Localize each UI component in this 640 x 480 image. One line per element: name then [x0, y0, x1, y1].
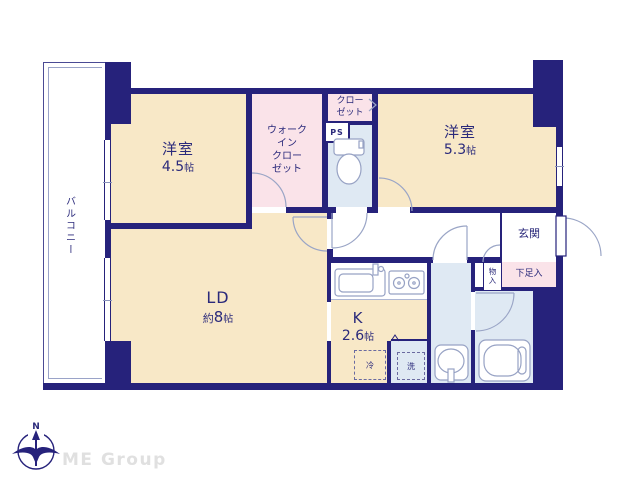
- living-dining-label: LD 約8帖: [168, 288, 268, 328]
- sink-faucet: [373, 264, 378, 275]
- entrance-door-arc: [563, 218, 601, 256]
- sink-faucet-knob: [379, 267, 384, 272]
- living-door-arc: [293, 217, 327, 251]
- living-dining-size: 約8帖: [168, 308, 268, 328]
- closet-label: クロー ゼット: [328, 96, 372, 119]
- bedroom45-size: 4.5帖: [128, 159, 228, 177]
- walk-in-closet-label: ウォーク イン クロー ゼット: [252, 124, 322, 176]
- toilet-button: [359, 141, 363, 148]
- bedroom53-size: 5.3帖: [410, 142, 510, 160]
- kitchen-size: 2.6帖: [308, 328, 408, 346]
- bedroom45-name: 洋室: [128, 140, 228, 159]
- toilet-bowl: [337, 154, 361, 184]
- washbasin-stem: [448, 369, 454, 382]
- kitchen-name: K: [308, 309, 408, 328]
- storage-door-arc: [483, 245, 500, 262]
- shoe-cabinet-label: 下足入: [502, 269, 556, 280]
- compass-north-label: N: [29, 422, 43, 433]
- bedroom53-door-arc: [379, 178, 412, 211]
- entrance-door-leaf: [556, 216, 566, 256]
- wic-door-arc: [252, 173, 286, 207]
- balcony-label: バルコニー: [62, 196, 75, 256]
- kitchen-label: K 2.6帖: [308, 309, 408, 345]
- brand-watermark: ME Group: [62, 450, 167, 470]
- floorplan: PS 物 入 冷 洗: [0, 0, 640, 480]
- bedroom53-name: 洋室: [410, 123, 510, 142]
- bathtub-outer: [479, 340, 530, 381]
- washroom-door-arc: [433, 226, 467, 260]
- entrance-label: 玄関: [502, 227, 556, 241]
- bedroom45-label: 洋室 4.5帖: [128, 140, 228, 176]
- bathroom-door-arc: [476, 293, 514, 331]
- bedroom53-label: 洋室 5.3帖: [410, 123, 510, 159]
- living-dining-name: LD: [168, 288, 268, 308]
- toilet-door-arc: [332, 213, 367, 248]
